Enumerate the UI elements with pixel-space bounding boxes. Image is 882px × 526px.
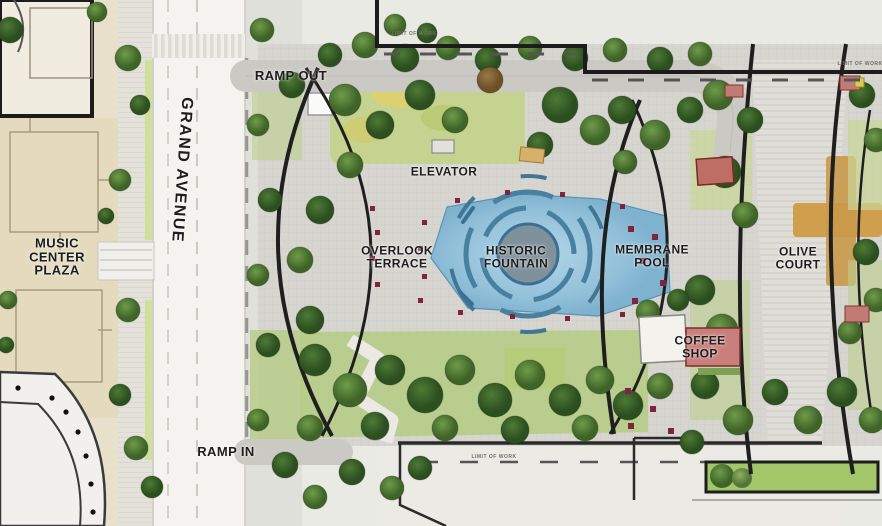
crosswalk-top bbox=[152, 34, 245, 58]
label-limit-of-work-top: LIMIT OF WORK bbox=[391, 31, 436, 37]
label-coffee-shop: COFFEE SHOP bbox=[667, 334, 733, 359]
label-historic-fountain: HISTORIC FOUNTAIN bbox=[470, 244, 562, 269]
site-plan: GRAND AVENUE RAMP OUT RAMP IN MUSIC CENT… bbox=[0, 0, 882, 526]
label-ramp-out: RAMP OUT bbox=[255, 69, 327, 83]
label-limit-of-work-top-right: LIMIT OF WORK bbox=[837, 61, 882, 67]
label-olive-court: OLIVE COURT bbox=[768, 245, 828, 270]
label-ramp-in: RAMP IN bbox=[197, 445, 254, 459]
label-limit-of-work-bottom: LIMIT OF WORK bbox=[471, 454, 516, 460]
label-membrane-pool: MEMBRANE POOL bbox=[602, 243, 702, 268]
label-overlook-terrace: OVERLOOK TERRACE bbox=[351, 244, 443, 269]
label-music-center-plaza: MUSIC CENTER PLAZA bbox=[17, 237, 97, 278]
pavilion-red-roof bbox=[696, 157, 734, 185]
bottom-site bbox=[380, 438, 882, 526]
label-elevator: ELEVATOR bbox=[411, 166, 478, 179]
